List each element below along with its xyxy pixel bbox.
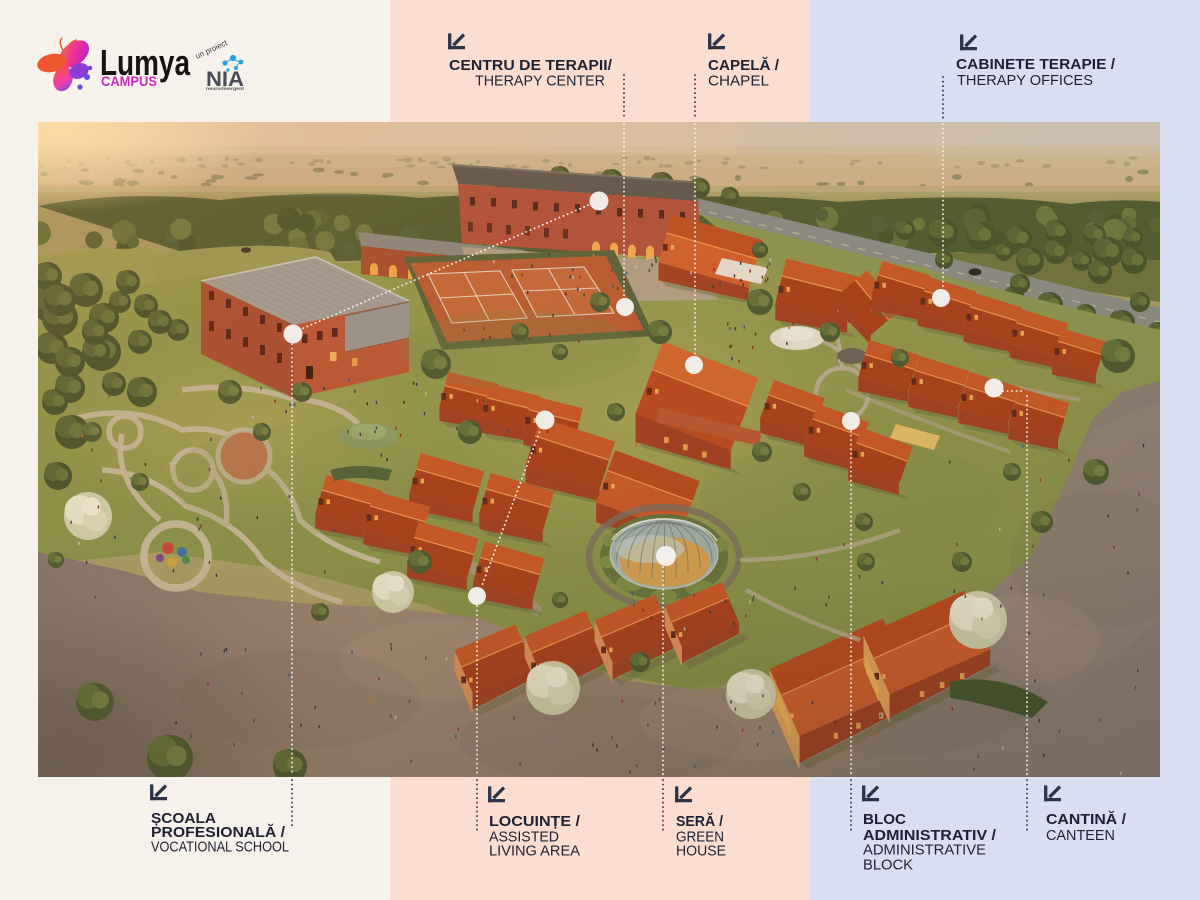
svg-text:LOCUINȚE /: LOCUINȚE / — [489, 813, 581, 830]
svg-text:CAMPUS: CAMPUS — [101, 74, 157, 89]
svg-text:CAPELĂ /: CAPELĂ / — [708, 57, 780, 74]
svg-text:neurodivergent: neurodivergent — [206, 86, 244, 92]
svg-text:CANTEEN: CANTEEN — [1046, 827, 1115, 844]
svg-text:THERAPY OFFICES: THERAPY OFFICES — [957, 72, 1093, 89]
svg-text:HOUSE: HOUSE — [676, 843, 726, 860]
svg-text:CANTINĂ /: CANTINĂ / — [1046, 811, 1127, 828]
svg-text:CHAPEL: CHAPEL — [708, 73, 769, 90]
svg-text:CABINETE TERAPIE /: CABINETE TERAPIE / — [956, 56, 1116, 73]
svg-text:BLOC: BLOC — [863, 811, 906, 828]
svg-text:CENTRU DE TERAPII/: CENTRU DE TERAPII/ — [449, 57, 613, 74]
svg-text:SERĂ /: SERĂ / — [676, 813, 724, 830]
svg-text:THERAPY CENTER: THERAPY CENTER — [475, 73, 605, 90]
svg-text:LIVING AREA: LIVING AREA — [489, 843, 580, 860]
svg-text:BLOCK: BLOCK — [863, 857, 913, 874]
svg-text:VOCATIONAL SCHOOL: VOCATIONAL SCHOOL — [151, 839, 289, 856]
